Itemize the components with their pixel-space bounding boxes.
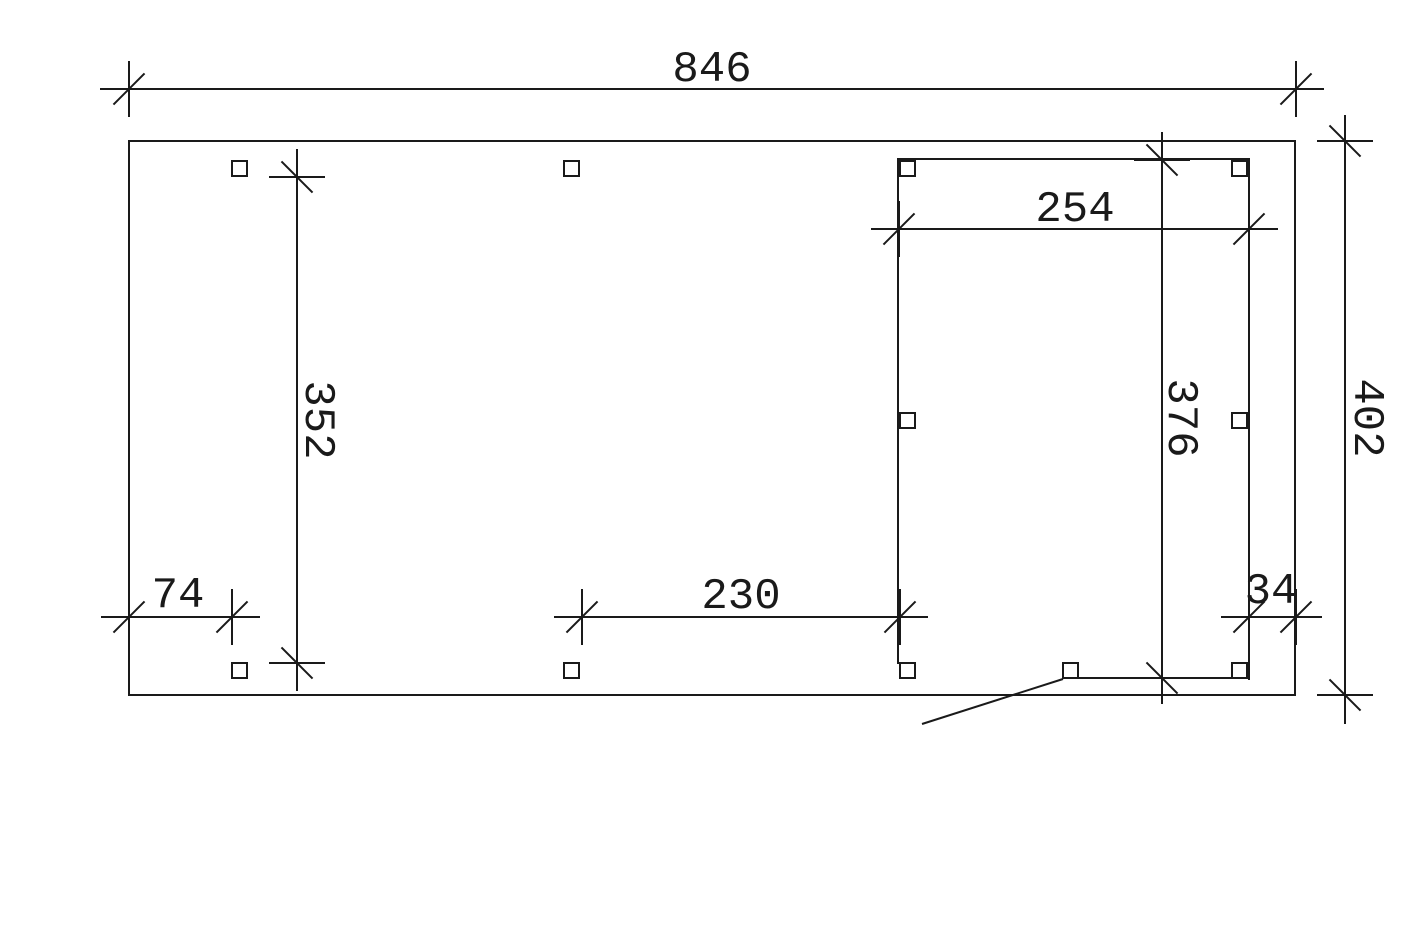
- dimension-label-total-depth: 402: [1344, 378, 1388, 457]
- dimension-label-inner-bay-width: 254: [1035, 188, 1114, 232]
- dimension-label-right-offset: 34: [1245, 570, 1298, 614]
- dimension-label-total-width: 846: [672, 48, 751, 92]
- post-marker: [563, 160, 580, 177]
- inner-outline-top: [897, 158, 1250, 160]
- post-marker: [1231, 160, 1248, 177]
- post-marker: [1231, 662, 1248, 679]
- dimension-label-middle-span: 230: [701, 575, 780, 619]
- post-marker: [899, 662, 916, 679]
- post-marker: [231, 160, 248, 177]
- dimension-label-inner-bay-depth: 376: [1158, 378, 1202, 457]
- post-marker: [231, 662, 248, 679]
- dimension-label-left-offset: 74: [152, 574, 205, 618]
- post-marker: [899, 160, 916, 177]
- cad-drawing-canvas: 846 254 74 230 34 352 376 402: [0, 0, 1407, 938]
- post-marker: [1062, 662, 1079, 679]
- post-marker: [563, 662, 580, 679]
- post-marker: [899, 412, 916, 429]
- dimension-label-left-depth: 352: [295, 380, 339, 459]
- post-marker: [1231, 412, 1248, 429]
